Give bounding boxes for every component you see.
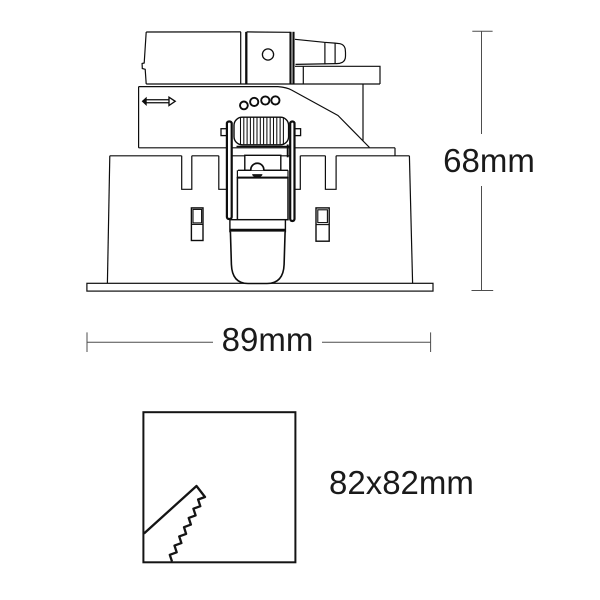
svg-text:82x82mm: 82x82mm [329,464,474,501]
svg-text:68mm: 68mm [443,142,535,179]
svg-text:89mm: 89mm [222,321,314,358]
